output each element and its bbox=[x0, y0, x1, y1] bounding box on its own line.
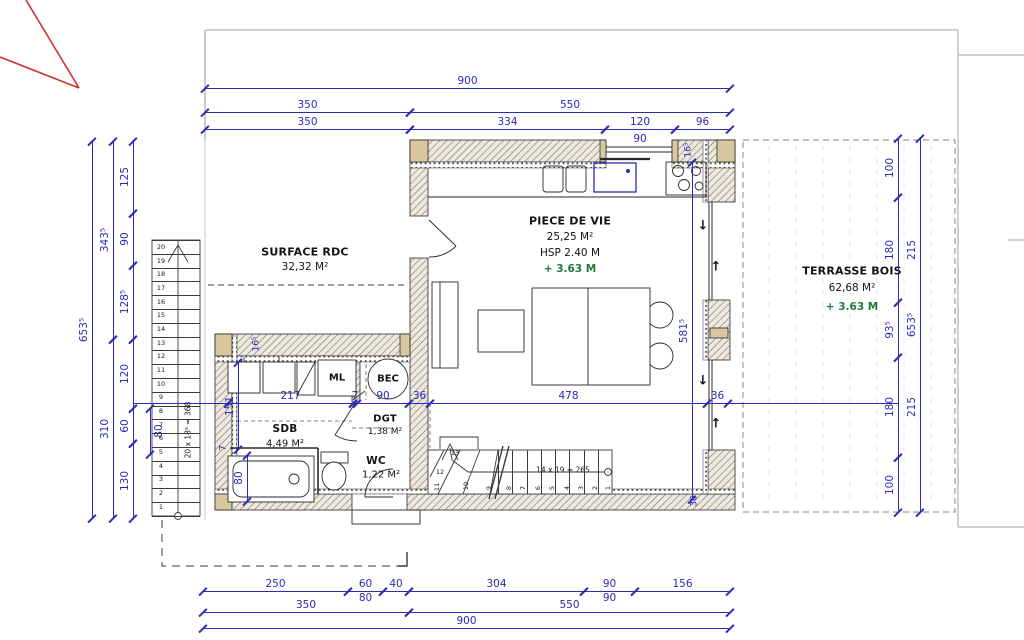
dim-label: 120 bbox=[120, 363, 131, 383]
dimension-line bbox=[113, 339, 114, 518]
annotation-stp: 11 bbox=[434, 483, 441, 491]
dim-label: 350 bbox=[296, 600, 316, 611]
dimension-line bbox=[113, 141, 114, 339]
dimension-line bbox=[133, 213, 134, 265]
annotation-dim: 16⁵ bbox=[685, 142, 694, 157]
room-label-piece-de-vie: PIECE DE VIE bbox=[529, 215, 611, 228]
stair-tread bbox=[512, 450, 513, 494]
stair-tread bbox=[152, 254, 200, 255]
dimension-line bbox=[357, 403, 409, 404]
stair-tread bbox=[598, 450, 599, 494]
stair-step-number: 10 bbox=[157, 380, 165, 387]
dim-label: 653⁵ bbox=[907, 313, 918, 337]
stair-tread bbox=[152, 268, 200, 269]
stair-tread bbox=[584, 450, 585, 494]
dim-label: 90 bbox=[603, 593, 616, 604]
dimension-line bbox=[238, 362, 239, 449]
stair-step-number: 4 bbox=[159, 462, 163, 469]
dimension-line bbox=[203, 628, 730, 629]
dim-label: 217 bbox=[280, 391, 300, 402]
dim-label: 90 bbox=[633, 134, 646, 145]
dim-label: 900 bbox=[457, 76, 477, 87]
room-label-sdb: SDB bbox=[273, 423, 298, 435]
stair-step-number: 9 bbox=[159, 394, 163, 401]
dimension-line bbox=[898, 457, 899, 512]
room-area-surface-rdc: 32,32 M² bbox=[282, 261, 329, 273]
dim-label: 120 bbox=[630, 117, 650, 128]
stair-step-number: 2 bbox=[159, 490, 163, 497]
dimension-line bbox=[430, 403, 707, 404]
dimension-line bbox=[205, 129, 410, 130]
stair-tread bbox=[152, 295, 200, 296]
room-area-wc: 1,22 M² bbox=[362, 470, 400, 481]
dim-label: 100 bbox=[885, 157, 896, 177]
living-furniture bbox=[432, 282, 673, 385]
stair-step-number: 8 bbox=[159, 408, 163, 415]
appliance-label-bec: BEC bbox=[377, 374, 399, 385]
terrace-outline bbox=[743, 140, 955, 512]
dim-label: 215 bbox=[907, 397, 918, 417]
dimension-line bbox=[150, 408, 151, 454]
dimension-line bbox=[898, 357, 899, 457]
stair-tread bbox=[541, 450, 542, 494]
annotation-stp: 9 bbox=[486, 486, 493, 490]
room-label-dgt: DGT bbox=[373, 414, 397, 425]
stair-tread bbox=[152, 516, 200, 517]
dim-label: 36 bbox=[413, 391, 426, 402]
dimension-line bbox=[92, 141, 93, 518]
dim-label: 96 bbox=[696, 117, 709, 128]
dimension-line bbox=[133, 265, 134, 339]
dim-label: 653⁵ bbox=[79, 317, 90, 341]
dim-label: 550 bbox=[559, 600, 579, 611]
dim-label: 100 bbox=[885, 474, 896, 494]
stair-step-number: 17 bbox=[157, 285, 165, 292]
stair-step-number: 15 bbox=[157, 312, 165, 319]
dimension-line bbox=[205, 88, 730, 89]
annotation-note: 14 x 19 = 265 bbox=[536, 466, 590, 474]
dim-label: 900 bbox=[456, 616, 476, 627]
dim-label: 550 bbox=[560, 100, 580, 111]
room-area-sdb: 4,49 M² bbox=[266, 439, 304, 450]
annotation-arrow: ↓ bbox=[698, 375, 709, 388]
stair-tread bbox=[498, 450, 499, 494]
annotation-dim: 36 bbox=[691, 495, 700, 506]
dim-label: 156 bbox=[672, 579, 692, 590]
room-hsp-piece-de-vie: HSP 2.40 M bbox=[540, 247, 600, 259]
dimension-line bbox=[133, 141, 134, 213]
neighbor-plan-red-lines bbox=[0, 0, 79, 88]
stair-step-number: 6 bbox=[159, 435, 163, 442]
stair-step-number: 12 bbox=[157, 353, 165, 360]
room-level-terrasse: + 3.63 M bbox=[826, 301, 878, 313]
stair-step-number: 13 bbox=[157, 339, 165, 346]
dim-label: 350 bbox=[297, 117, 317, 128]
dimension-line bbox=[410, 129, 605, 130]
dim-label: 93⁵ bbox=[885, 321, 896, 339]
dimension-line bbox=[409, 591, 584, 592]
dimension-line bbox=[205, 112, 410, 113]
dim-label: 180 bbox=[885, 239, 896, 259]
stair-step-number: 11 bbox=[157, 367, 165, 374]
stair-step-number: 16 bbox=[157, 298, 165, 305]
dim-label: 40 bbox=[389, 579, 402, 590]
stair-step-number: 14 bbox=[157, 326, 165, 333]
dimension-line bbox=[133, 403, 228, 404]
dim-label: 36 bbox=[711, 391, 724, 402]
dimension-line bbox=[410, 112, 730, 113]
dim-label: 334 bbox=[497, 117, 517, 128]
dimension-line bbox=[728, 403, 898, 404]
room-label-surface-rdc: SURFACE RDC bbox=[261, 246, 348, 259]
dim-label: 581⁵ bbox=[679, 318, 690, 342]
dim-label: 90 bbox=[603, 579, 616, 590]
annotation-arrow: ↑ bbox=[711, 418, 722, 431]
dim-label: 310 bbox=[100, 418, 111, 438]
floor-plan-canvas: SURFACE RDC 32,32 M² PIECE DE VIE 25,25 … bbox=[0, 0, 1024, 640]
dim-label: 80 bbox=[359, 593, 372, 604]
dim-label: 151 bbox=[225, 395, 236, 415]
dimension-line bbox=[675, 129, 730, 130]
dim-label: 80 bbox=[234, 471, 245, 484]
dim-label: 90 bbox=[376, 391, 389, 402]
stair-tread bbox=[555, 450, 556, 494]
annotation-dim: 7 bbox=[220, 445, 229, 451]
annotation-note: 20 x 18⁵ = 368 bbox=[184, 402, 192, 459]
stair-step-number: 7 bbox=[159, 421, 163, 428]
dim-label: 60 bbox=[120, 419, 131, 432]
stair-step-number: 5 bbox=[159, 449, 163, 456]
room-label-terrasse: TERRASSE BOIS bbox=[802, 265, 902, 278]
dimension-line bbox=[228, 403, 353, 404]
dim-label: 350 bbox=[297, 100, 317, 111]
stair-tread bbox=[152, 309, 200, 310]
dimension-line bbox=[635, 591, 730, 592]
stair-tread bbox=[152, 281, 200, 282]
room-level-piece-de-vie: + 3.63 M bbox=[544, 263, 596, 275]
annotation-arrow: ↓ bbox=[698, 220, 709, 233]
dimension-line bbox=[605, 129, 675, 130]
room-area-dgt: 1,38 M² bbox=[368, 427, 402, 437]
appliance-label-ml: ML bbox=[329, 373, 345, 384]
annotation-arrow: ↑ bbox=[711, 261, 722, 274]
dim-label: 90 bbox=[120, 232, 131, 245]
room-area-piece-de-vie: 25,25 M² bbox=[547, 231, 594, 243]
dim-label: 128⁵ bbox=[120, 290, 131, 314]
dim-label: 180 bbox=[885, 397, 896, 417]
dim-label: 60 bbox=[359, 579, 372, 590]
dimension-line bbox=[898, 302, 899, 357]
dimension-line bbox=[133, 443, 134, 518]
dimension-line bbox=[203, 591, 348, 592]
annotation-stp: 10 bbox=[463, 482, 470, 490]
stair-tread bbox=[569, 450, 570, 494]
dimension-line bbox=[920, 138, 921, 512]
stair-step-number: 3 bbox=[159, 476, 163, 483]
annotation-stp: 7 bbox=[520, 486, 527, 490]
dim-label: 343⁵ bbox=[100, 228, 111, 252]
stair-tread bbox=[527, 450, 528, 494]
dimension-line bbox=[247, 455, 248, 501]
dim-label: 125 bbox=[120, 167, 131, 187]
room-label-wc: WC bbox=[366, 455, 386, 467]
stair-step-number: 20 bbox=[157, 244, 165, 251]
room-area-terrasse: 62,68 M² bbox=[829, 282, 876, 294]
annotation-dim: 16⁵ bbox=[253, 336, 262, 351]
annotation-stp: 13 bbox=[451, 450, 459, 457]
dimension-line bbox=[898, 138, 899, 197]
stair-step-number: 19 bbox=[157, 257, 165, 264]
dim-label: 215 bbox=[907, 239, 918, 259]
dim-label: 250 bbox=[265, 579, 285, 590]
dimension-line bbox=[133, 339, 134, 408]
stair-tread bbox=[152, 240, 200, 241]
dimension-line bbox=[409, 612, 730, 613]
dim-label: 130 bbox=[120, 470, 131, 490]
dimension-line bbox=[383, 591, 409, 592]
dimension-line bbox=[133, 408, 134, 443]
annotation-stp: 1 bbox=[605, 486, 612, 490]
dimension-line bbox=[692, 162, 693, 499]
dim-label: 304 bbox=[486, 579, 506, 590]
dimension-line bbox=[898, 197, 899, 302]
annotation-stp: 12 bbox=[436, 469, 444, 476]
stair-tread bbox=[152, 323, 200, 324]
stair-step-number: 1 bbox=[159, 503, 163, 510]
dimension-line bbox=[203, 612, 409, 613]
stair-step-number: 18 bbox=[157, 271, 165, 278]
plan-linework bbox=[0, 0, 1024, 640]
dim-label: 478 bbox=[558, 391, 578, 402]
dim-label: 7 bbox=[352, 391, 359, 402]
